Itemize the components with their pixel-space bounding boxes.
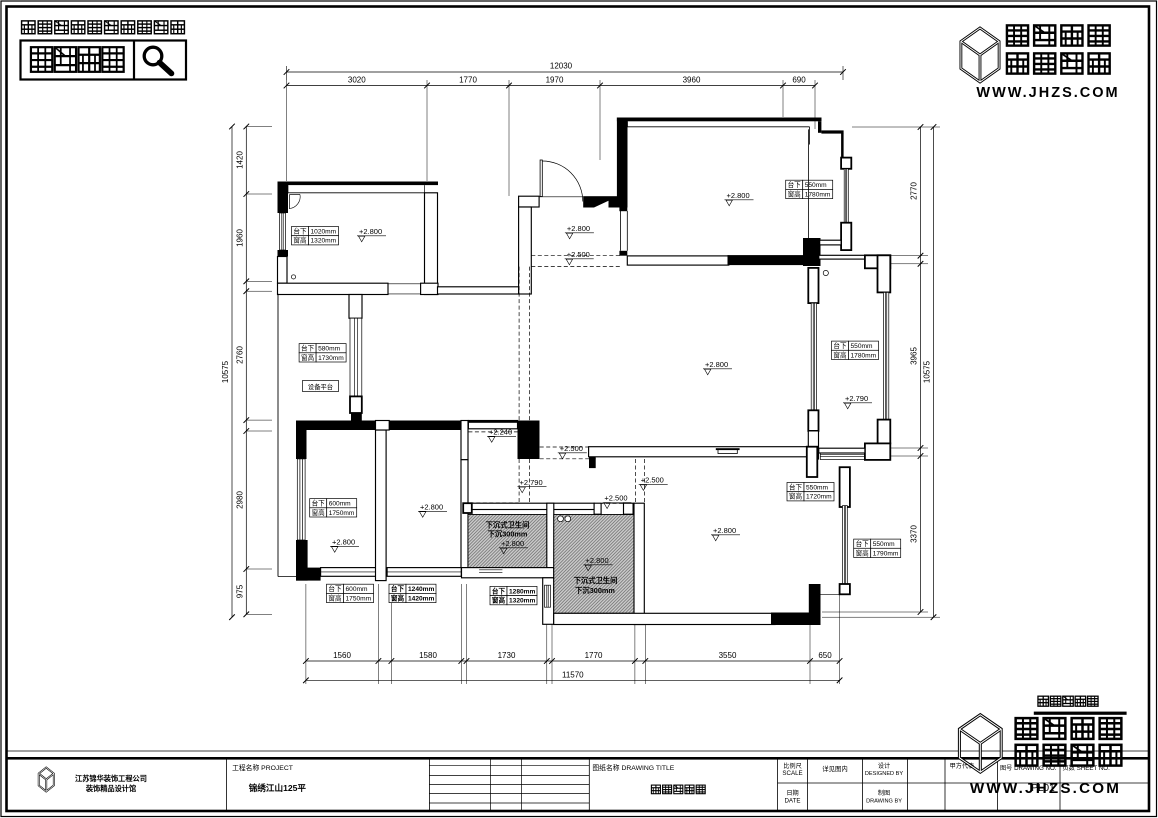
svg-text:WWW.JHZS.COM: WWW.JHZS.COM <box>970 780 1121 797</box>
svg-text:台下: 台下 <box>293 227 307 236</box>
svg-text:窗高: 窗高 <box>788 189 802 198</box>
svg-text:制图: 制图 <box>878 789 890 797</box>
svg-text:10575: 10575 <box>221 360 230 383</box>
svg-text:+2.500: +2.500 <box>641 476 664 485</box>
svg-text:+2.800: +2.800 <box>420 503 443 512</box>
svg-text:600mm: 600mm <box>329 501 351 508</box>
svg-text:图纸名称 DRAWING TITLE: 图纸名称 DRAWING TITLE <box>592 763 674 772</box>
svg-text:下沉300mm: 下沉300mm <box>488 530 528 539</box>
svg-text:窗高: 窗高 <box>301 353 315 362</box>
svg-text:台下: 台下 <box>833 341 847 350</box>
svg-text:窗高: 窗高 <box>492 596 506 605</box>
svg-text:窗高: 窗高 <box>856 548 870 557</box>
svg-text:1320mm: 1320mm <box>509 598 536 605</box>
svg-text:详见图内: 详见图内 <box>822 764 848 773</box>
svg-text:1770: 1770 <box>585 651 603 660</box>
svg-text:1730: 1730 <box>498 651 516 660</box>
svg-text:600mm: 600mm <box>346 586 368 593</box>
svg-text:3370: 3370 <box>910 525 919 543</box>
svg-text:11570: 11570 <box>562 670 584 679</box>
svg-text:580mm: 580mm <box>318 346 340 353</box>
svg-text:+2.790: +2.790 <box>845 394 868 403</box>
svg-text:+2.800: +2.800 <box>727 191 750 200</box>
svg-text:550mm: 550mm <box>873 541 895 548</box>
svg-text:下沉式卫生间: 下沉式卫生间 <box>486 521 530 530</box>
svg-text:窗高: 窗高 <box>391 593 405 602</box>
svg-text:550mm: 550mm <box>851 343 873 350</box>
svg-text:日期: 日期 <box>786 789 798 797</box>
svg-text:1720mm: 1720mm <box>806 494 832 501</box>
svg-text:窗高: 窗高 <box>312 508 326 517</box>
svg-text:1790mm: 1790mm <box>873 550 899 557</box>
svg-text:1320mm: 1320mm <box>311 238 337 245</box>
svg-text:1280mm: 1280mm <box>509 588 536 595</box>
svg-text:690: 690 <box>792 76 806 85</box>
svg-text:台下: 台下 <box>301 344 315 353</box>
svg-text:650: 650 <box>818 651 832 660</box>
svg-text:台下: 台下 <box>391 584 405 593</box>
svg-text:江苏锦华装饰工程公司: 江苏锦华装饰工程公司 <box>75 774 147 783</box>
svg-text:台下: 台下 <box>789 483 803 492</box>
svg-text:1240mm: 1240mm <box>408 586 435 593</box>
svg-text:+2.800: +2.800 <box>359 227 382 236</box>
svg-text:1420: 1420 <box>236 151 245 169</box>
svg-text:1750mm: 1750mm <box>346 595 372 602</box>
svg-text:窗高: 窗高 <box>789 492 803 501</box>
svg-text:12030: 12030 <box>550 62 573 71</box>
svg-text:+2.800: +2.800 <box>705 360 728 369</box>
svg-text:3965: 3965 <box>910 347 919 365</box>
svg-text:1970: 1970 <box>546 76 564 85</box>
svg-text:1770: 1770 <box>459 76 477 85</box>
svg-text:装饰精品设计馆: 装饰精品设计馆 <box>86 784 136 793</box>
svg-text:比例尺: 比例尺 <box>783 762 802 770</box>
svg-text:DATE: DATE <box>784 798 800 805</box>
svg-text:10575: 10575 <box>923 360 932 383</box>
svg-text:SCALE: SCALE <box>782 770 802 777</box>
svg-text:2760: 2760 <box>236 346 245 364</box>
svg-text:3960: 3960 <box>683 76 701 85</box>
svg-text:3550: 3550 <box>719 651 737 660</box>
svg-text:下沉式卫生间: 下沉式卫生间 <box>574 576 618 585</box>
svg-text:2980: 2980 <box>236 491 245 509</box>
svg-text:DRAWING BY: DRAWING BY <box>866 799 902 805</box>
svg-text:+2.800: +2.800 <box>567 224 590 233</box>
svg-text:1750mm: 1750mm <box>329 510 355 517</box>
svg-text:1960: 1960 <box>236 229 245 247</box>
svg-text:1420mm: 1420mm <box>408 595 435 602</box>
svg-text:+2.800: +2.800 <box>713 526 736 535</box>
svg-text:1730mm: 1730mm <box>318 355 344 362</box>
svg-text:550mm: 550mm <box>805 182 827 189</box>
svg-text:工程名称 PROJECT: 工程名称 PROJECT <box>232 763 293 772</box>
svg-text:台下: 台下 <box>312 499 326 508</box>
svg-text:1780mm: 1780mm <box>851 352 877 359</box>
svg-text:设计: 设计 <box>878 762 890 770</box>
svg-text:1580: 1580 <box>419 651 437 660</box>
svg-text:1560: 1560 <box>333 651 351 660</box>
svg-text:1020mm: 1020mm <box>311 229 337 236</box>
svg-text:WWW.JHZS.COM: WWW.JHZS.COM <box>976 85 1119 101</box>
svg-text:550mm: 550mm <box>806 485 828 492</box>
svg-text:DESIGNED BY: DESIGNED BY <box>865 771 904 777</box>
svg-text:下沉300mm: 下沉300mm <box>575 586 615 595</box>
svg-text:台下: 台下 <box>856 539 870 548</box>
svg-text:+2.500: +2.500 <box>604 494 627 503</box>
svg-text:台下: 台下 <box>328 584 342 593</box>
svg-text:锦绣江山125平: 锦绣江山125平 <box>249 782 307 793</box>
svg-text:+2.500: +2.500 <box>560 444 583 453</box>
svg-text:+2.790: +2.790 <box>520 478 543 487</box>
svg-text:+2.800: +2.800 <box>332 538 355 547</box>
svg-text:+2.800: +2.800 <box>586 556 609 565</box>
svg-text:2770: 2770 <box>910 182 919 200</box>
svg-text:+2.500: +2.500 <box>567 250 590 259</box>
svg-text:+2.800: +2.800 <box>501 539 524 548</box>
svg-text:窗高: 窗高 <box>833 350 847 359</box>
svg-text:窗高: 窗高 <box>328 593 342 602</box>
svg-text:台下: 台下 <box>492 586 506 595</box>
svg-text:3020: 3020 <box>348 76 366 85</box>
svg-text:设备平台: 设备平台 <box>308 382 333 391</box>
svg-text:975: 975 <box>236 584 245 598</box>
svg-text:台下: 台下 <box>788 180 802 189</box>
svg-text:窗高: 窗高 <box>293 236 307 245</box>
